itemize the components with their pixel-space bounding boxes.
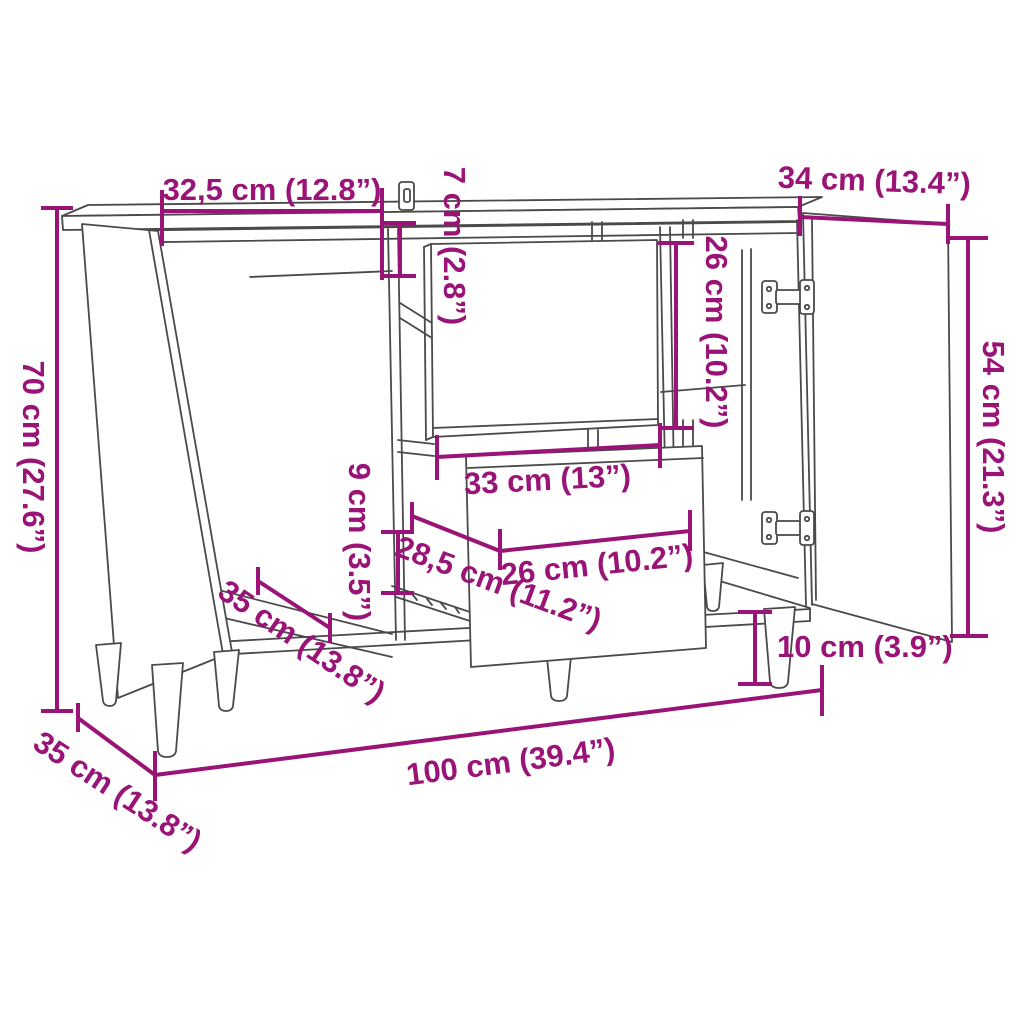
dim-label-drawer-side-height: 9 cm (3.5”): [342, 463, 377, 622]
center-partition-left: [388, 229, 396, 640]
dim-overall-height: 70 cm (27.6”): [16, 208, 73, 711]
dim-label-door-height: 54 cm (21.3”): [976, 341, 1011, 534]
sideboard-dimension-drawing: 32,5 cm (12.8”) 7 cm (2.8”) 34 cm (13.4”…: [0, 0, 1024, 1024]
hinge-bottom: [762, 511, 814, 545]
dim-label-left-door-width: 32,5 cm (12.8”): [163, 172, 382, 207]
diagram-canvas: 32,5 cm (12.8”) 7 cm (2.8”) 34 cm (13.4”…: [0, 0, 1024, 1024]
door-handle: [399, 182, 414, 210]
dim-label-leg-height: 10 cm (3.9”): [777, 629, 953, 664]
dim-overall-width: 100 cm (39.4”): [155, 665, 822, 801]
right-door-open: [803, 213, 952, 642]
leg-center-back: [214, 650, 239, 711]
dim-label-overall-height: 70 cm (27.6”): [16, 361, 51, 554]
dim-label-right-door-width: 34 cm (13.4”): [777, 160, 971, 202]
dim-label-drawer-front-height: 26 cm (10.2”): [699, 236, 734, 429]
left-compartment-back-edge: [250, 271, 392, 277]
dim-label-top-rail-height: 7 cm (2.8”): [437, 167, 472, 326]
left-door-open: [82, 224, 232, 698]
hinge-top: [762, 280, 814, 314]
leg-front-left: [152, 663, 183, 757]
dim-overall-depth: 35 cm (13.8”): [27, 703, 208, 858]
leg-back-left: [96, 643, 121, 706]
dim-door-height: 54 cm (21.3”): [950, 238, 1011, 636]
dim-label-overall-depth: 35 cm (13.8”): [27, 724, 208, 858]
dim-drawer-front-height: 26 cm (10.2”): [658, 236, 734, 429]
